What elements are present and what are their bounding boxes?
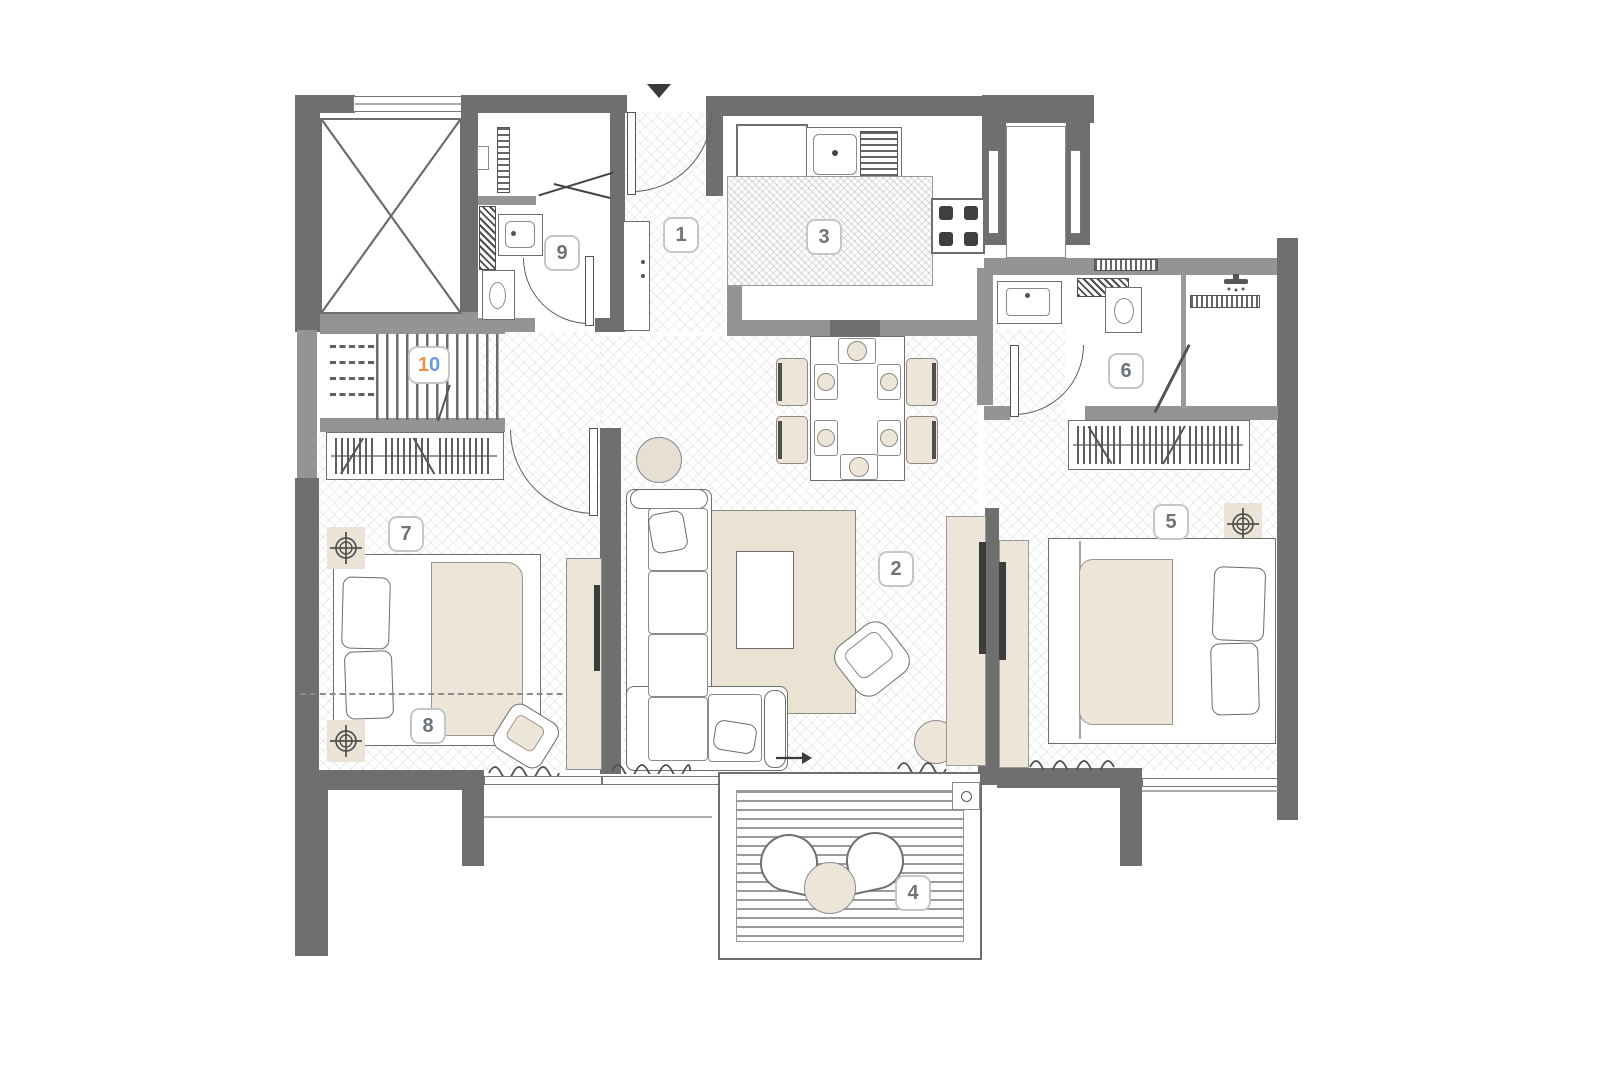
wall-pillar — [462, 770, 484, 866]
room-number-digit: 1 — [418, 354, 429, 377]
chair-seat — [504, 713, 546, 754]
dining-chair — [906, 416, 938, 464]
wall — [1277, 238, 1298, 820]
chair-back — [932, 421, 936, 459]
room-number-digit: 0 — [429, 354, 440, 377]
hanging-clothes — [439, 438, 493, 474]
dining-chair — [776, 416, 808, 464]
bed-pillow — [344, 650, 394, 720]
shower-divider — [1181, 274, 1186, 408]
shower-screen-line — [554, 183, 611, 199]
wall — [984, 406, 1010, 420]
wall — [295, 95, 320, 332]
sink-drain — [832, 150, 838, 156]
wall — [595, 318, 625, 332]
floor-plan: 1 2 3 4 5 6 7 8 9 10 — [0, 0, 1600, 1067]
toilet-bowl — [489, 282, 506, 309]
wall — [1085, 406, 1278, 420]
stair-dashed-line — [330, 345, 374, 348]
cabinet-knob — [641, 274, 645, 278]
shower-screen-line — [538, 172, 613, 197]
stove — [931, 198, 985, 254]
wall — [706, 96, 984, 116]
balcony-table — [804, 862, 856, 914]
wall — [982, 95, 1094, 123]
sofa-cushion — [648, 634, 708, 697]
stair-dashed-line — [330, 393, 374, 396]
room-number: 7 — [400, 523, 411, 546]
curtain-icon — [896, 756, 950, 772]
sofa-pillow — [647, 509, 689, 555]
slide-direction-arrow — [774, 750, 814, 766]
chair-back — [778, 363, 782, 401]
curtain-icon — [1028, 754, 1118, 770]
bed — [1048, 538, 1276, 744]
wall — [295, 478, 319, 774]
room-label-10: 10 — [408, 346, 450, 384]
sofa-armrest — [630, 489, 708, 509]
room-number: 6 — [1120, 360, 1131, 383]
room-number: 5 — [1165, 511, 1176, 534]
service-shaft — [1006, 126, 1066, 258]
spotlight-symbol — [327, 720, 365, 762]
elevator-shaft — [320, 118, 462, 314]
cabinet-knob — [641, 260, 645, 264]
drain-box — [952, 782, 980, 810]
stair-dashed-line — [330, 361, 374, 364]
burner — [939, 232, 953, 246]
hanging-clothes — [385, 438, 433, 474]
chair-back — [778, 421, 782, 459]
room-label-7: 7 — [388, 516, 424, 552]
shower-head-icon — [1218, 272, 1254, 294]
shoe-cabinet — [623, 221, 650, 331]
entry-arrow — [647, 84, 671, 98]
door-leaf — [589, 428, 598, 516]
sink-drain — [511, 231, 516, 236]
wall — [830, 320, 880, 336]
room-number: 9 — [556, 242, 567, 265]
wall-fixture — [477, 146, 489, 170]
curtain-icon — [610, 758, 692, 774]
drainboard — [860, 131, 898, 178]
sofa-cushion — [648, 571, 708, 634]
wall — [997, 768, 1121, 788]
hanging-clothes — [1189, 426, 1243, 464]
sink-basin — [505, 221, 535, 248]
plate — [849, 457, 869, 477]
plant-pot — [636, 437, 682, 483]
tv-cabinet — [566, 558, 602, 770]
bed-pillow — [1210, 642, 1260, 715]
plate — [847, 341, 867, 361]
bed-pillow — [341, 576, 391, 649]
wall — [461, 95, 627, 113]
chair-back — [932, 363, 936, 401]
room-label-8: 8 — [410, 708, 446, 744]
plate — [817, 429, 835, 447]
room-number: 4 — [907, 882, 918, 905]
sofa-pillow — [712, 719, 758, 755]
balcony — [718, 772, 982, 960]
armchair-seat — [842, 629, 896, 682]
towel-rail — [1190, 295, 1260, 308]
shaft-window — [1070, 150, 1081, 234]
window-line — [355, 103, 461, 105]
room-label-4: 4 — [895, 875, 931, 911]
toilet-bowl — [1114, 298, 1134, 324]
burner — [939, 206, 953, 220]
room-label-5: 5 — [1153, 504, 1189, 540]
room-number: 1 — [675, 224, 686, 247]
drying-rack — [497, 127, 510, 193]
wall — [977, 268, 993, 405]
room-number: 3 — [818, 226, 829, 249]
crosshair-icon — [327, 720, 365, 762]
wall — [478, 196, 536, 205]
vanity-counter — [997, 281, 1062, 324]
shaft-window — [988, 150, 999, 234]
window-sill — [484, 816, 712, 818]
room-label-1: 1 — [663, 217, 699, 253]
room-number: 8 — [422, 715, 433, 738]
plate — [817, 373, 835, 391]
hanging-clothes — [335, 438, 377, 474]
shaft-cross-icon — [322, 120, 460, 312]
room-number: 2 — [890, 558, 901, 581]
sink — [498, 214, 543, 256]
sink-drain — [1025, 293, 1030, 298]
door-arc — [1014, 345, 1084, 415]
wardrobe — [1068, 420, 1250, 470]
room-label-3: 3 — [806, 219, 842, 255]
plate — [880, 373, 898, 391]
room-label-6: 6 — [1108, 353, 1144, 389]
wall-pillar — [295, 770, 328, 956]
bed-duvet — [1079, 559, 1173, 725]
room-label-2: 2 — [878, 551, 914, 587]
dining-chair — [776, 358, 808, 406]
kitchen-sink-unit — [806, 127, 902, 183]
window — [1142, 778, 1278, 787]
stair-dashed-line — [330, 377, 374, 380]
wall-pillar — [1120, 768, 1142, 866]
bed-pillow — [1212, 566, 1267, 642]
duct-shaft — [479, 206, 496, 270]
window-sill — [1142, 790, 1278, 792]
tv-screen — [999, 562, 1006, 660]
plate — [880, 429, 898, 447]
burner — [964, 232, 978, 246]
curtain-icon — [487, 760, 561, 776]
toilet — [1105, 287, 1142, 333]
dining-chair — [906, 358, 938, 406]
burner — [964, 206, 978, 220]
wall-tv — [985, 508, 999, 782]
wall — [318, 770, 464, 790]
wall — [320, 418, 505, 432]
wardrobe — [326, 432, 504, 480]
tv-screen — [979, 542, 986, 654]
room-label-9: 9 — [544, 235, 580, 271]
spotlight-symbol — [327, 527, 365, 569]
wall — [461, 112, 478, 316]
door-leaf — [585, 256, 594, 326]
shelf-ledge — [1094, 259, 1158, 271]
toilet — [482, 270, 515, 320]
wall — [600, 428, 621, 774]
tv-screen — [594, 585, 600, 671]
window — [484, 776, 602, 785]
room-divider-dashed — [300, 693, 602, 695]
sofa-cushion — [648, 697, 708, 761]
entry-door-leaf — [627, 112, 636, 195]
wall — [320, 320, 505, 334]
drain-hole — [961, 791, 972, 802]
door-leaf — [1010, 345, 1019, 417]
crosshair-icon — [327, 527, 365, 569]
coffee-table — [736, 551, 794, 649]
wall — [297, 330, 317, 480]
